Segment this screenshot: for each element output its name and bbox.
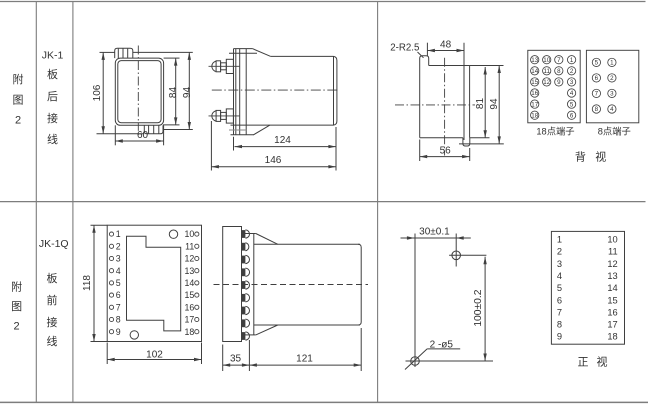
svg-text:146: 146	[265, 155, 282, 166]
svg-text:17: 17	[185, 315, 195, 325]
svg-text:14: 14	[607, 283, 617, 293]
svg-text:94: 94	[489, 98, 500, 110]
svg-text:56: 56	[440, 145, 452, 156]
svg-text:2: 2	[557, 247, 562, 257]
svg-text:1: 1	[570, 57, 574, 64]
svg-text:1: 1	[116, 229, 121, 239]
svg-text:100±0.2: 100±0.2	[473, 289, 484, 326]
svg-text:1: 1	[610, 60, 614, 67]
svg-text:前: 前	[47, 293, 58, 307]
svg-text:35: 35	[230, 353, 242, 364]
svg-text:30±0.1: 30±0.1	[419, 227, 450, 238]
svg-text:9: 9	[557, 79, 561, 86]
svg-text:板: 板	[47, 271, 58, 285]
svg-text:13: 13	[531, 57, 538, 64]
svg-text:4: 4	[116, 266, 121, 276]
svg-text:4: 4	[610, 106, 614, 113]
svg-text:7: 7	[116, 302, 121, 312]
svg-text:118: 118	[82, 275, 93, 291]
svg-text:102: 102	[146, 349, 163, 360]
svg-text:106: 106	[92, 84, 103, 101]
svg-text:8点端子: 8点端子	[598, 126, 631, 137]
svg-text:7: 7	[557, 307, 562, 317]
svg-text:14: 14	[531, 68, 538, 75]
svg-text:3: 3	[116, 254, 121, 264]
svg-text:JK-1Q: JK-1Q	[39, 238, 69, 250]
svg-text:5: 5	[557, 283, 562, 293]
svg-text:板: 板	[47, 67, 58, 81]
svg-text:接: 接	[47, 112, 58, 125]
svg-text:16: 16	[531, 90, 538, 97]
svg-text:16: 16	[607, 307, 617, 317]
svg-text:5: 5	[116, 278, 121, 288]
svg-text:14: 14	[185, 278, 195, 288]
svg-text:13: 13	[607, 271, 617, 281]
svg-text:图: 图	[11, 300, 22, 313]
svg-text:8: 8	[116, 315, 121, 325]
svg-text:16: 16	[185, 302, 195, 312]
svg-text:5: 5	[570, 101, 574, 108]
svg-text:12: 12	[543, 79, 550, 86]
svg-text:后: 后	[47, 90, 58, 103]
svg-text:17: 17	[607, 320, 617, 330]
svg-text:18点端子: 18点端子	[536, 126, 574, 137]
svg-text:2: 2	[15, 115, 21, 127]
svg-text:3: 3	[557, 259, 562, 269]
svg-text:12: 12	[607, 259, 617, 269]
svg-text:3: 3	[610, 91, 614, 98]
svg-text:附: 附	[11, 280, 22, 294]
svg-text:接: 接	[47, 316, 58, 329]
svg-text:视: 视	[597, 354, 608, 368]
svg-text:10: 10	[185, 229, 195, 239]
svg-text:线: 线	[47, 132, 58, 146]
svg-text:60: 60	[137, 130, 149, 141]
svg-text:正: 正	[578, 356, 589, 368]
svg-text:11: 11	[185, 241, 194, 251]
svg-text:1: 1	[557, 235, 562, 245]
svg-text:8: 8	[557, 68, 561, 75]
svg-text:2: 2	[116, 241, 121, 251]
svg-text:10: 10	[543, 57, 550, 64]
svg-text:11: 11	[608, 247, 618, 257]
svg-text:附: 附	[13, 72, 24, 86]
svg-text:8: 8	[557, 320, 562, 330]
svg-text:2: 2	[570, 68, 574, 75]
svg-text:15: 15	[607, 295, 617, 305]
svg-text:JK-1: JK-1	[42, 50, 64, 62]
svg-text:2-R2.5: 2-R2.5	[390, 43, 419, 54]
svg-text:4: 4	[557, 271, 562, 281]
svg-text:17: 17	[531, 101, 538, 108]
svg-text:3: 3	[570, 79, 574, 86]
svg-text:视: 视	[595, 149, 606, 163]
svg-text:94: 94	[182, 87, 193, 99]
svg-text:7: 7	[557, 57, 561, 64]
svg-text:121: 121	[296, 353, 313, 364]
svg-text:84: 84	[168, 87, 179, 99]
svg-text:2: 2	[610, 75, 614, 82]
svg-text:背: 背	[575, 149, 586, 163]
svg-text:8: 8	[595, 106, 599, 113]
svg-text:15: 15	[531, 79, 538, 86]
svg-text:11: 11	[543, 68, 550, 75]
svg-text:9: 9	[557, 332, 562, 342]
svg-text:9: 9	[116, 327, 121, 337]
svg-text:15: 15	[185, 290, 195, 300]
svg-text:5: 5	[595, 60, 599, 67]
svg-text:13: 13	[185, 266, 195, 276]
svg-text:2: 2	[14, 321, 20, 333]
svg-text:图: 图	[13, 94, 24, 107]
svg-text:18: 18	[531, 112, 538, 119]
svg-text:6: 6	[116, 290, 121, 300]
svg-text:12: 12	[185, 254, 195, 264]
svg-text:6: 6	[570, 112, 574, 119]
svg-text:18: 18	[607, 332, 617, 342]
svg-text:6: 6	[557, 295, 562, 305]
svg-text:10: 10	[607, 235, 617, 245]
svg-text:7: 7	[595, 91, 599, 98]
svg-text:81: 81	[475, 98, 486, 110]
svg-text:线: 线	[47, 334, 58, 348]
svg-text:18: 18	[185, 327, 195, 337]
svg-text:48: 48	[440, 40, 452, 51]
svg-text:4: 4	[570, 90, 574, 97]
svg-text:6: 6	[595, 75, 599, 82]
svg-text:124: 124	[274, 135, 291, 146]
